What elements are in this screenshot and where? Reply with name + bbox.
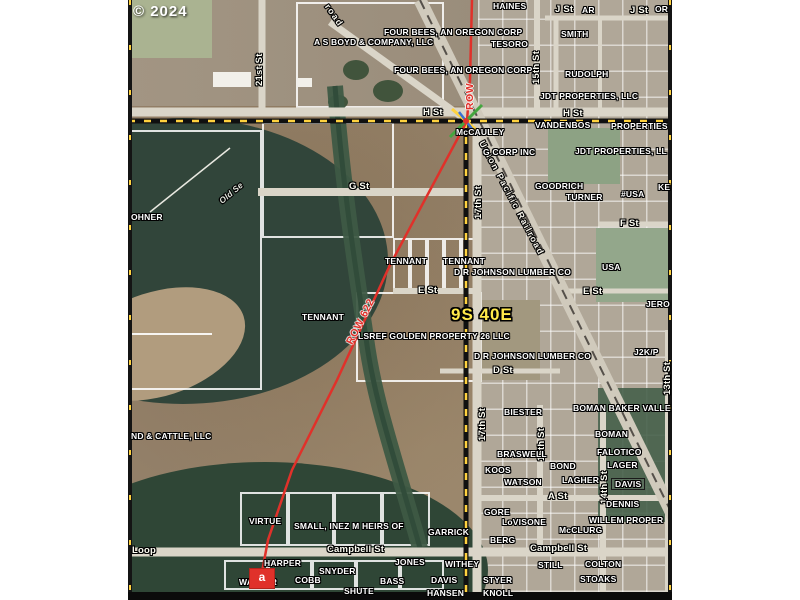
satellite-parcel-map[interactable] xyxy=(128,0,672,600)
old-slough-line xyxy=(150,148,230,212)
gis-map-screenshot: { "meta": {"copyright": "© 2024", "towns… xyxy=(0,0,800,600)
bottom-black-bar xyxy=(128,592,672,600)
row-line xyxy=(262,0,472,572)
map-linework xyxy=(128,0,672,600)
selected-feature-marker[interactable]: a xyxy=(249,568,275,589)
slough-band xyxy=(335,86,420,548)
railroad xyxy=(420,0,672,530)
